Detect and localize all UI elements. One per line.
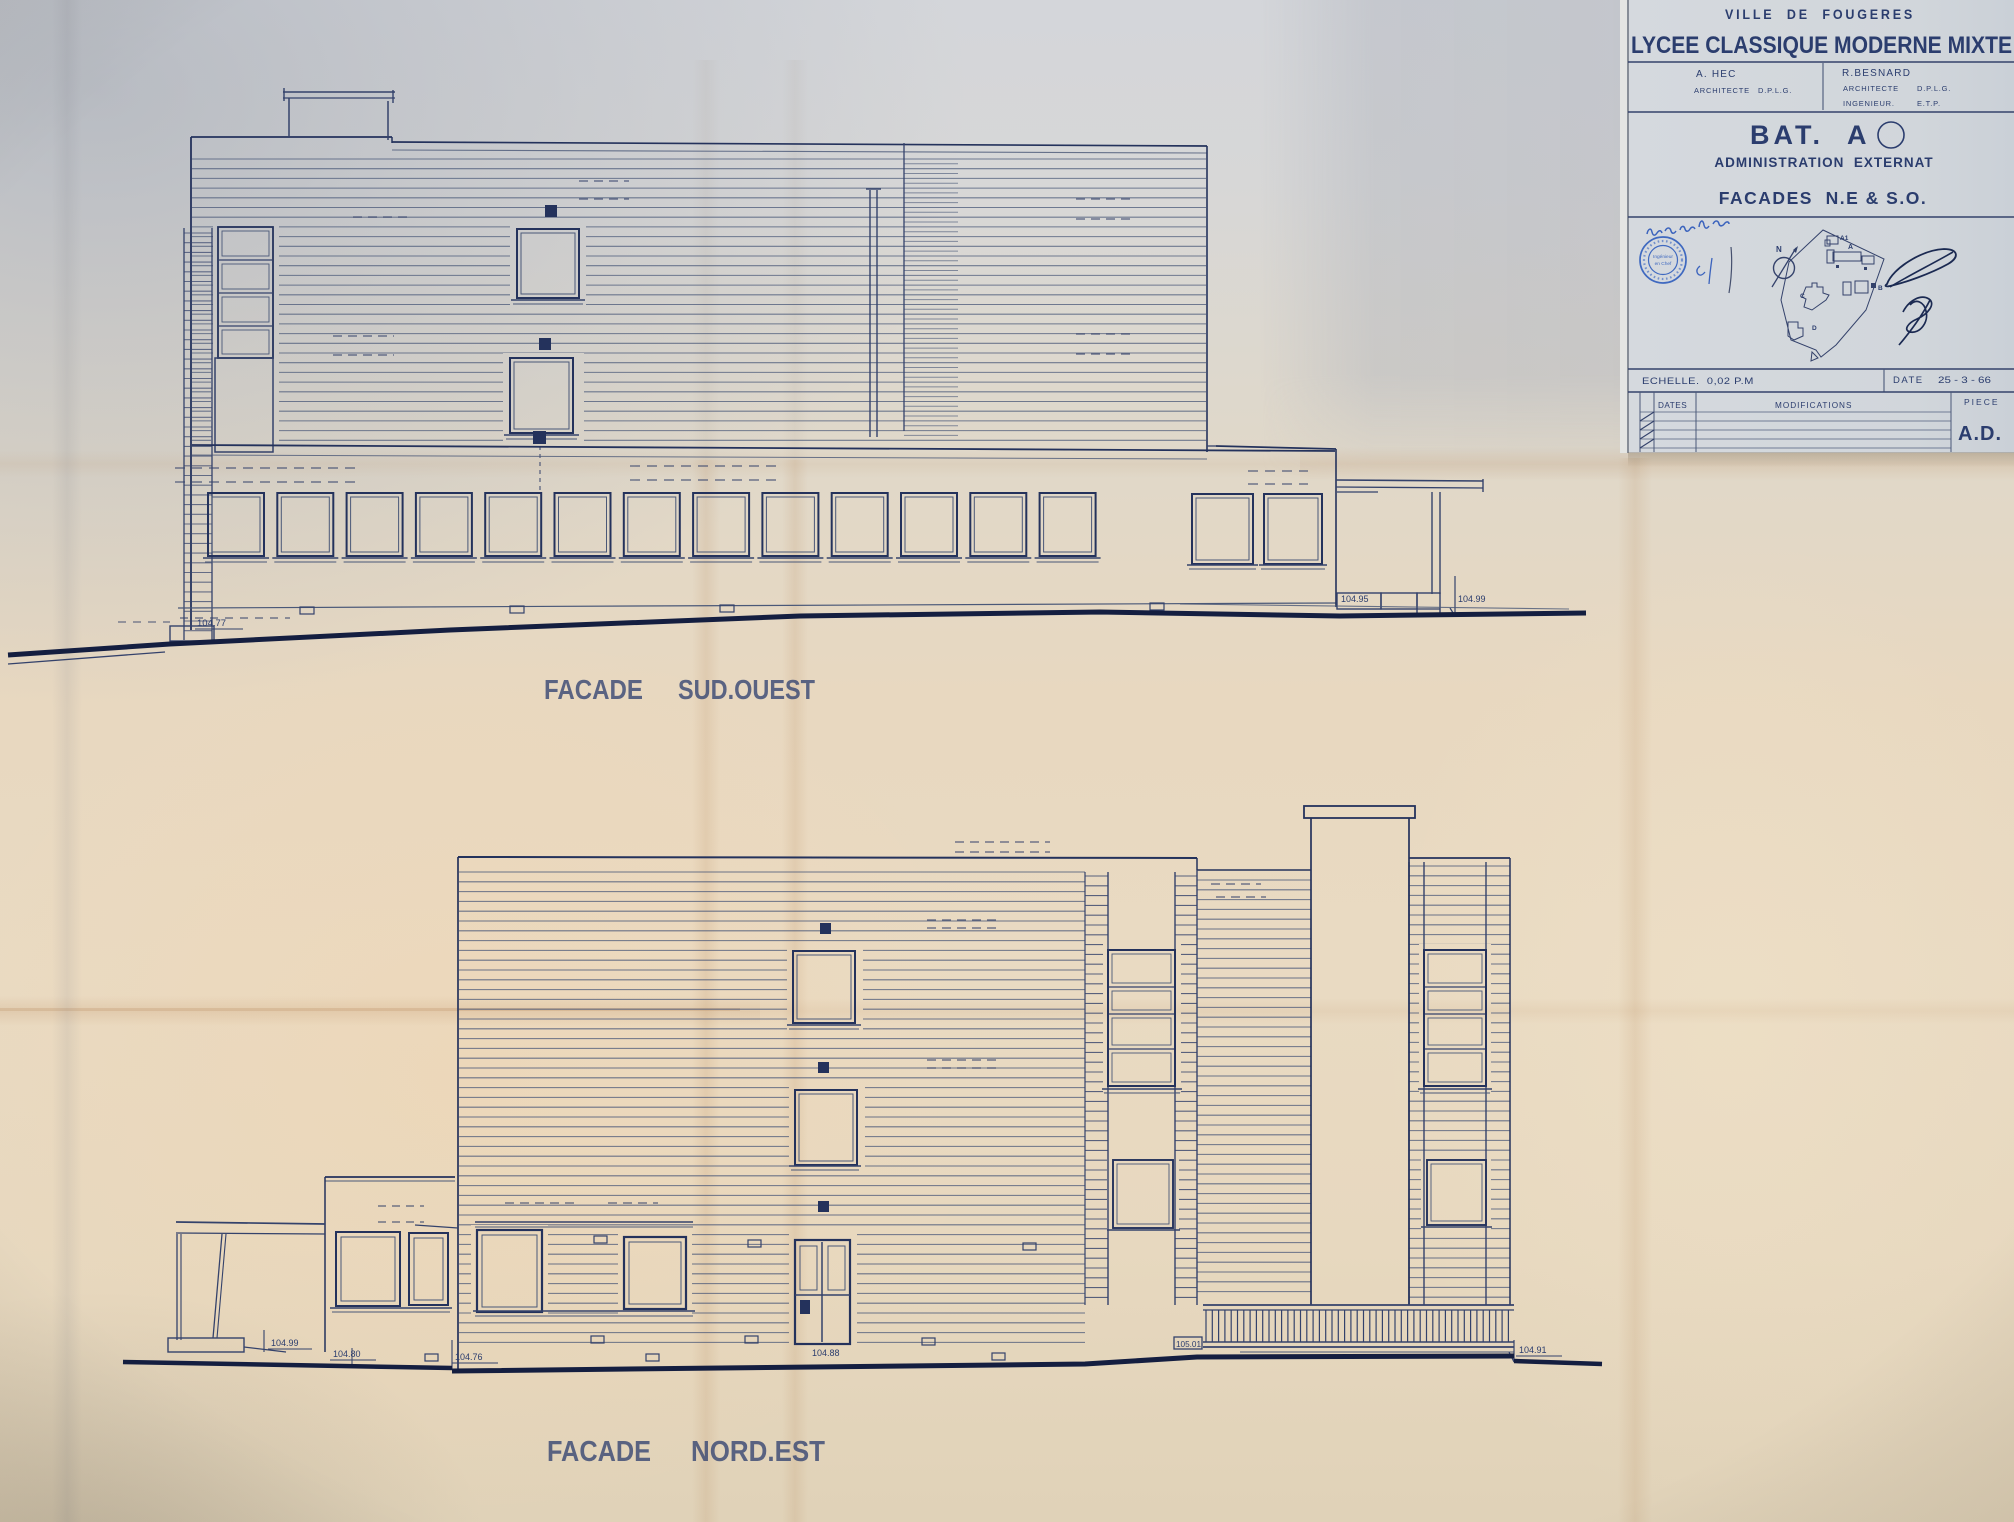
svg-text:104.80: 104.80 [333, 1349, 361, 1359]
svg-text:SUD.OUEST: SUD.OUEST [678, 674, 815, 705]
svg-text:A.D.: A.D. [1958, 423, 2002, 445]
svg-text:Ingénieur: Ingénieur [1653, 254, 1673, 260]
svg-text:C: C [1800, 293, 1805, 300]
svg-text:104.88: 104.88 [812, 1348, 840, 1358]
svg-text:D.P.L.G.: D.P.L.G. [1758, 86, 1792, 95]
svg-text:LYCEE CLASSIQUE MODERNE MIXTE: LYCEE CLASSIQUE MODERNE MIXTE [1631, 32, 2012, 59]
svg-text:FACADE: FACADE [547, 1436, 651, 1468]
svg-text:104.77: 104.77 [197, 618, 226, 629]
svg-text:B: B [1878, 285, 1883, 292]
svg-text:E.T.P.: E.T.P. [1917, 99, 1941, 108]
svg-text:N: N [1776, 245, 1782, 254]
svg-text:INGENIEUR.: INGENIEUR. [1843, 99, 1895, 108]
svg-text:DATE: DATE [1893, 375, 1924, 386]
svg-text:ARCHITECTE: ARCHITECTE [1694, 86, 1750, 95]
svg-text:104.99: 104.99 [271, 1338, 299, 1348]
svg-text:A. HEC: A. HEC [1696, 69, 1737, 80]
svg-text:25 - 3 - 66: 25 - 3 - 66 [1938, 375, 1991, 386]
svg-text:105.01: 105.01 [1176, 1340, 1201, 1349]
svg-text:PIECE: PIECE [1964, 397, 2000, 407]
svg-text:DATES: DATES [1658, 401, 1687, 410]
svg-text:FACADES N.E & S.O.: FACADES N.E & S.O. [1719, 188, 1927, 208]
svg-text:104.76: 104.76 [455, 1352, 483, 1362]
svg-text:NORD.EST: NORD.EST [691, 1436, 825, 1468]
svg-text:A1: A1 [1840, 235, 1849, 242]
svg-text:D.P.L.G.: D.P.L.G. [1917, 84, 1951, 93]
svg-text:FACADE: FACADE [544, 674, 643, 705]
svg-text:VILLE DE FOUGERES: VILLE DE FOUGERES [1725, 7, 1915, 22]
svg-text:D: D [1812, 325, 1817, 332]
svg-text:MODIFICATIONS: MODIFICATIONS [1775, 401, 1852, 410]
svg-text:R.BESNARD: R.BESNARD [1842, 68, 1911, 79]
svg-text:ADMINISTRATION EXTERNAT: ADMINISTRATION EXTERNAT [1714, 155, 1933, 170]
svg-text:ARCHITECTE: ARCHITECTE [1843, 84, 1899, 93]
svg-text:104.95: 104.95 [1341, 594, 1369, 604]
svg-text:104.99: 104.99 [1458, 594, 1486, 604]
svg-text:ECHELLE. 0,02 P.M: ECHELLE. 0,02 P.M [1642, 376, 1754, 387]
svg-text:BAT. A: BAT. A [1750, 120, 1871, 150]
svg-text:104.91: 104.91 [1519, 1345, 1547, 1355]
svg-text:A: A [1848, 244, 1853, 251]
svg-text:en Chef: en Chef [1655, 261, 1672, 267]
